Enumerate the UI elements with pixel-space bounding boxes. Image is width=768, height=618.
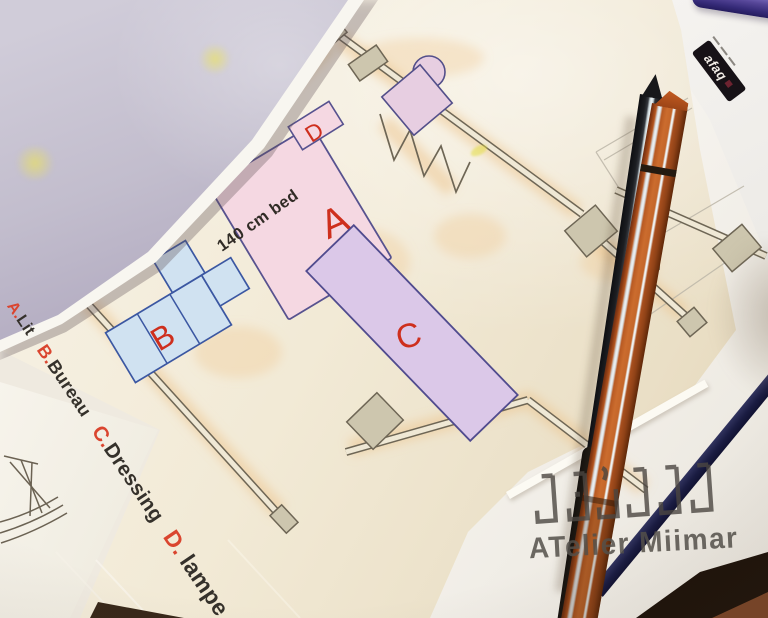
logo-mark (725, 80, 733, 88)
dressing: C (306, 225, 517, 441)
yellow-smudge (198, 44, 232, 74)
photo-of-floor-plan-sketch: 140 cm bed A D C B (0, 0, 768, 618)
soft-shadow (712, 242, 768, 402)
lamp-sketch (0, 456, 67, 543)
yellow-smudge (14, 146, 56, 180)
pen-ring (640, 164, 677, 177)
